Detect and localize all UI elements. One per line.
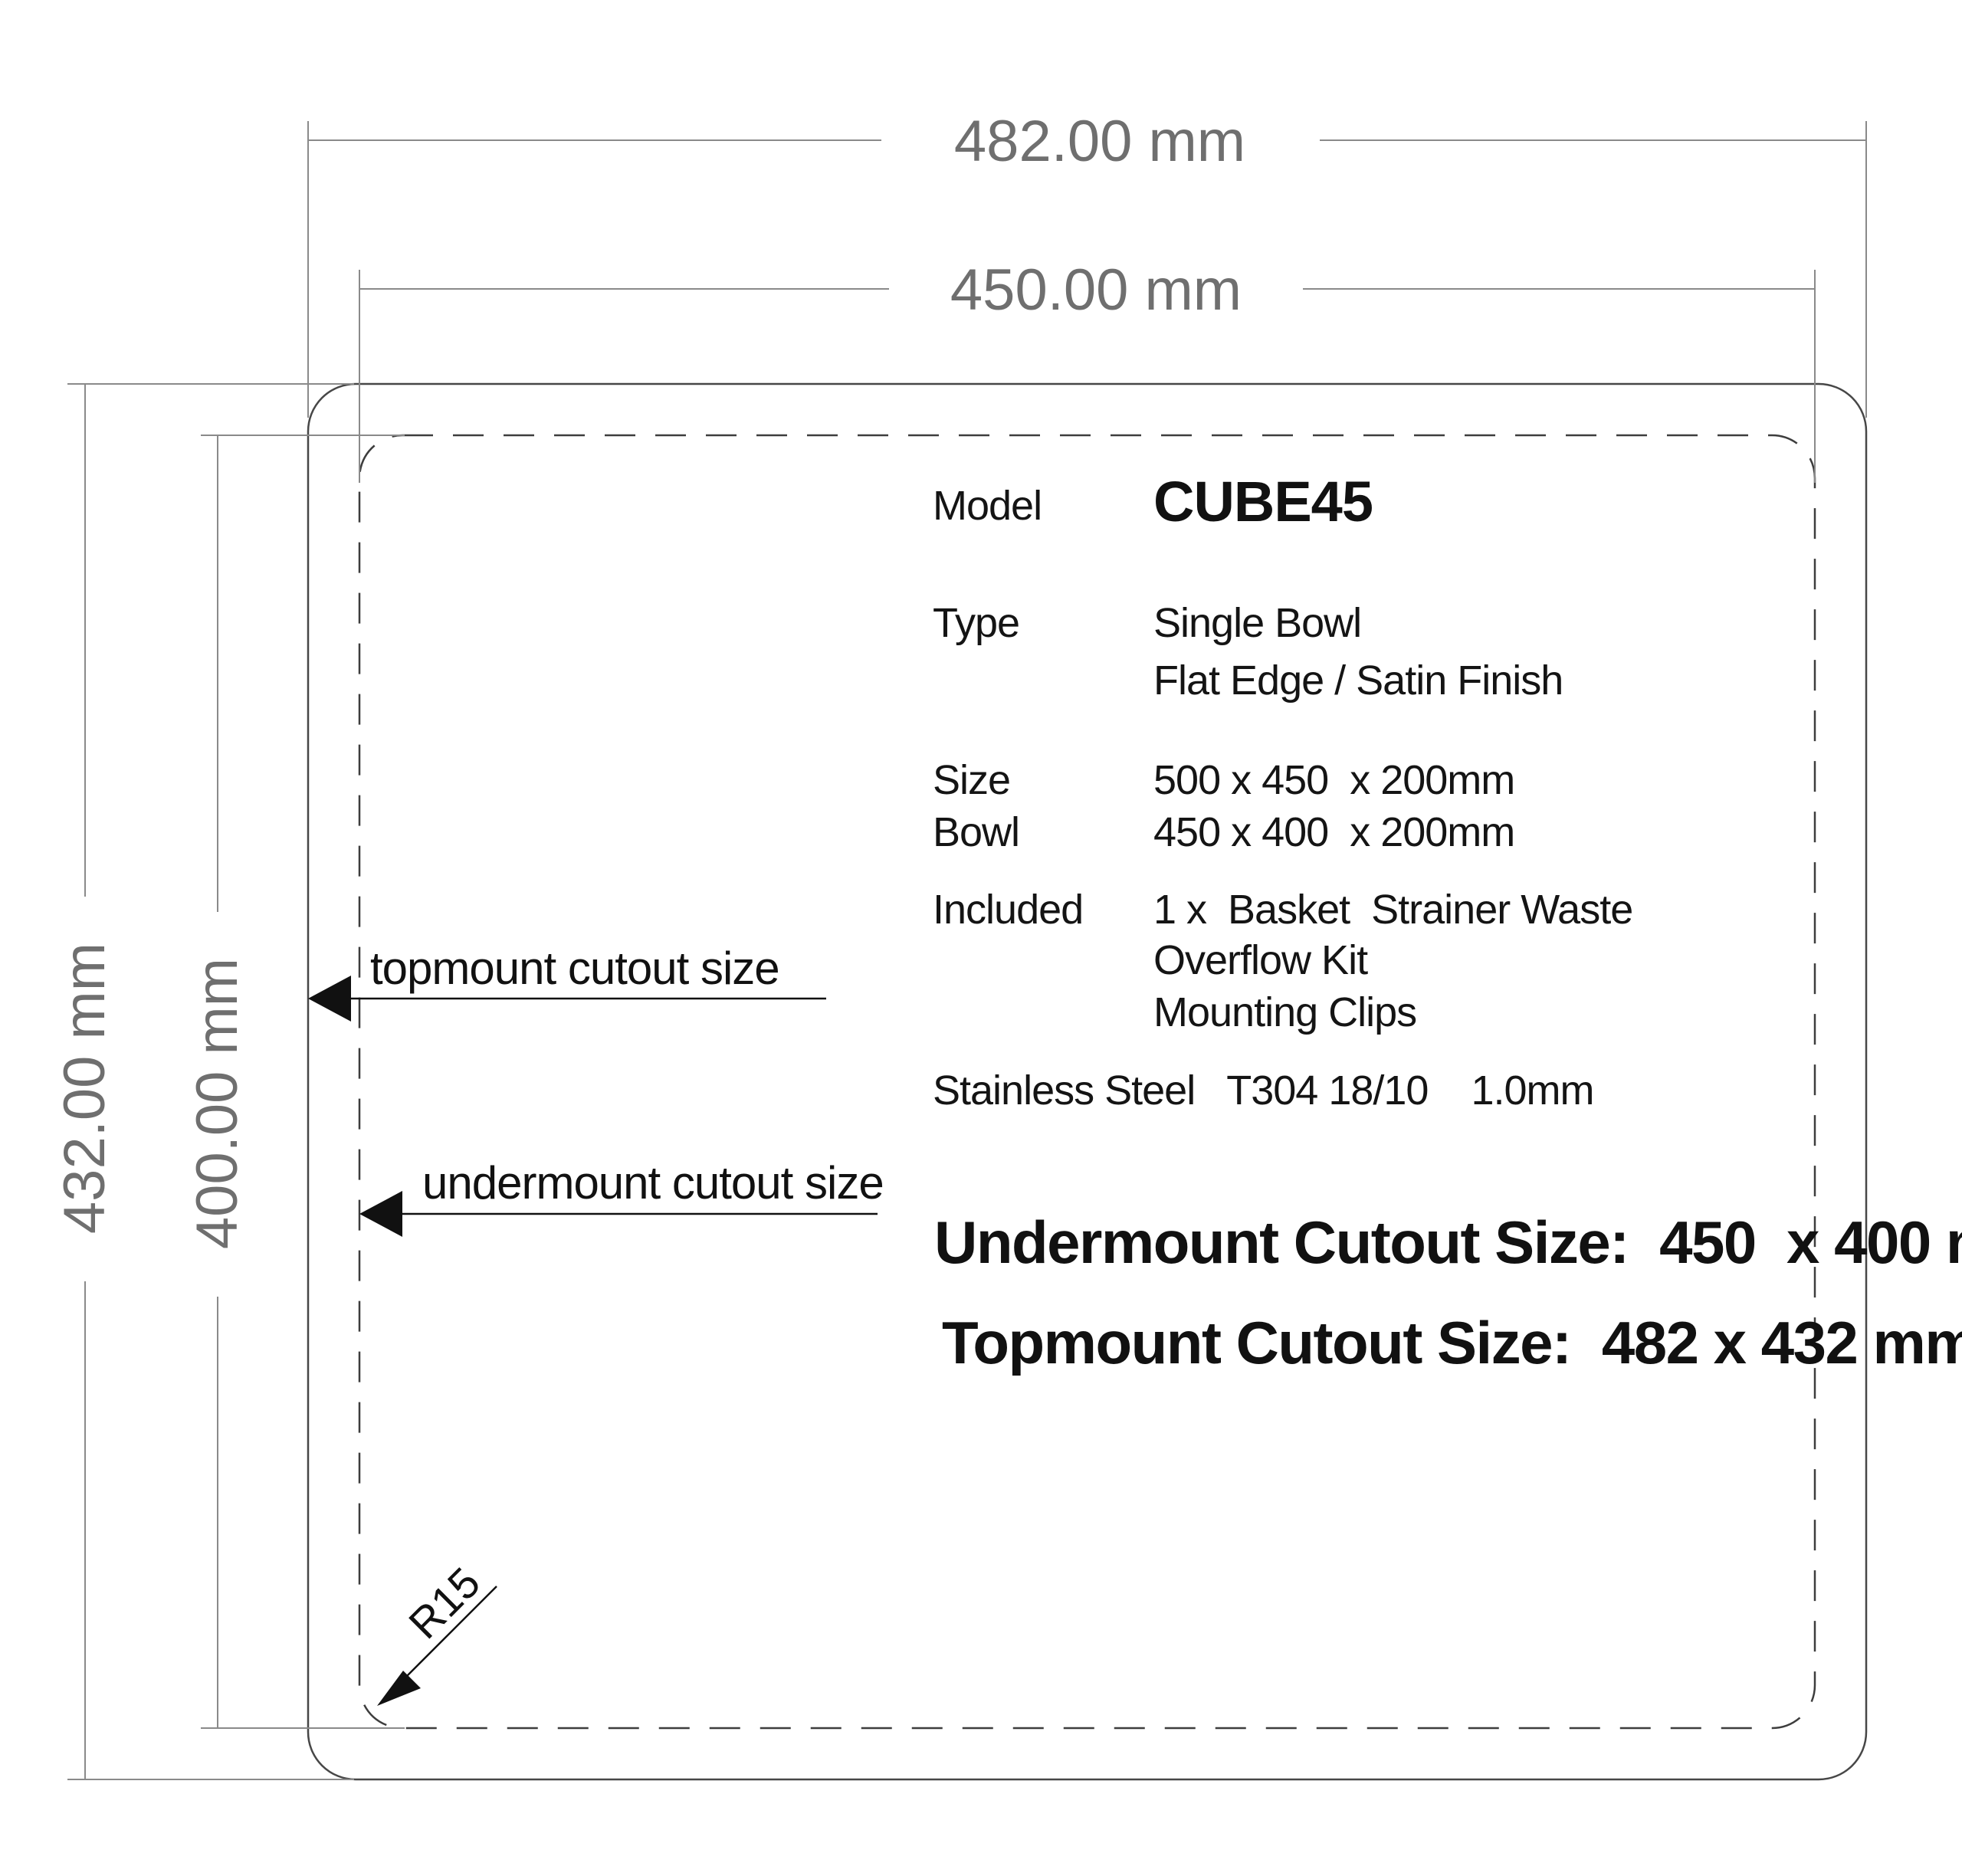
dim-label-482: 482.00 mm: [954, 113, 1245, 171]
material-spec: Stainless Steel T304 18/10 1.0mm: [933, 1070, 1594, 1111]
sink-cutout-diagram: 482.00 mm 450.00 mm 432.00 mm 400.00 mm …: [0, 0, 1962, 1876]
size-label: Size: [933, 759, 1010, 801]
undermount-summary: Undermount Cutout Size: 450 x 400 mm: [934, 1212, 1962, 1272]
topmount-callout-label: topmount cutout size: [370, 946, 779, 992]
extension-lines: [67, 121, 1866, 1779]
model-label: Model: [933, 485, 1042, 526]
type-value-line1: Single Bowl: [1153, 602, 1361, 644]
type-value-line2: Flat Edge / Satin Finish: [1153, 660, 1563, 701]
undermount-callout-label: undermount cutout size: [422, 1160, 884, 1206]
dim-label-432: 432.00 mm: [56, 943, 114, 1234]
topmount-summary: Topmount Cutout Size: 482 x 432 mm: [942, 1313, 1962, 1373]
arrow-left-icon: [308, 976, 351, 1022]
size-value: 500 x 450 x 200mm: [1153, 759, 1514, 801]
arrow-down-left-icon: [377, 1671, 421, 1706]
dim-label-450: 450.00 mm: [950, 261, 1242, 320]
included-item: Mounting Clips: [1153, 992, 1416, 1033]
arrow-left-icon: [359, 1191, 402, 1237]
dimension-lines: [85, 140, 1866, 1779]
bowl-value: 450 x 400 x 200mm: [1153, 812, 1514, 853]
model-value: CUBE45: [1153, 474, 1373, 530]
included-label: Included: [933, 889, 1083, 930]
dim-label-400: 400.00 mm: [189, 958, 247, 1249]
included-item: 1 x Basket Strainer Waste: [1153, 889, 1632, 930]
type-label: Type: [933, 602, 1019, 644]
included-item: Overflow Kit: [1153, 940, 1367, 981]
bowl-label: Bowl: [933, 812, 1019, 853]
